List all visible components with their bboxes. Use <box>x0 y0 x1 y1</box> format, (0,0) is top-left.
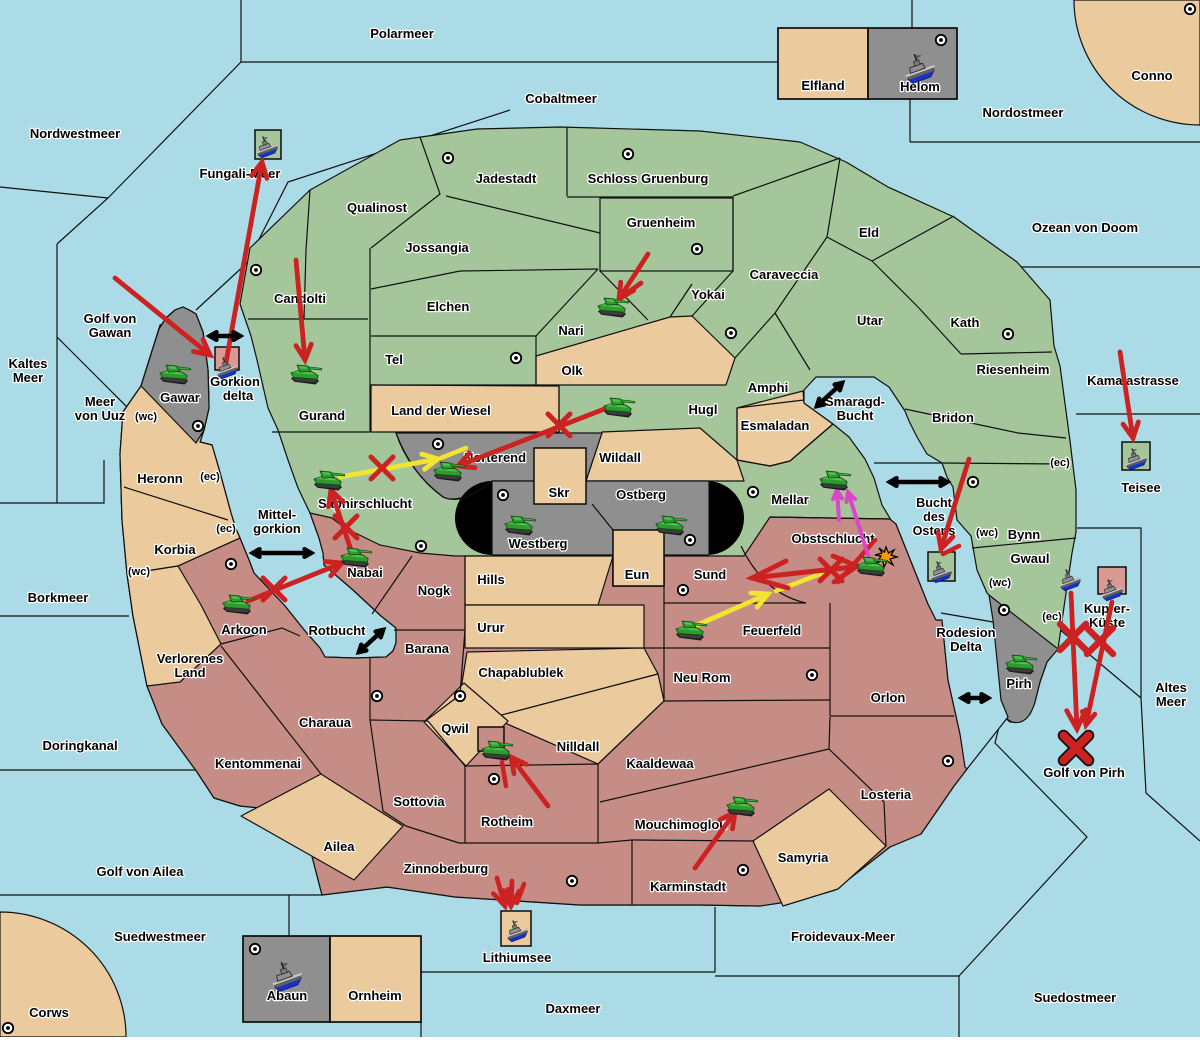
svg-text:Gurand: Gurand <box>299 408 345 423</box>
svg-text:Zinnoberburg: Zinnoberburg <box>404 861 489 876</box>
svg-text:Qwil: Qwil <box>441 721 468 736</box>
svg-text:Hugl: Hugl <box>689 402 718 417</box>
svg-text:Kath: Kath <box>951 315 980 330</box>
svg-text:Elfland: Elfland <box>801 78 844 93</box>
svg-text:Rodesion: Rodesion <box>936 625 995 640</box>
svg-text:Helom: Helom <box>900 79 940 94</box>
svg-text:Land: Land <box>174 665 205 680</box>
svg-text:Meer: Meer <box>85 394 115 409</box>
svg-text:Gorkion: Gorkion <box>210 374 260 389</box>
svg-text:Neu Rom: Neu Rom <box>673 670 730 685</box>
svg-text:Pirh: Pirh <box>1006 676 1031 691</box>
svg-text:Eun: Eun <box>625 567 650 582</box>
svg-text:Delta: Delta <box>950 639 983 654</box>
svg-text:Rotbucht: Rotbucht <box>308 623 366 638</box>
svg-text:Barana: Barana <box>405 641 450 656</box>
svg-text:Skr: Skr <box>549 485 570 500</box>
svg-text:Suedwestmeer: Suedwestmeer <box>114 929 206 944</box>
svg-text:Chapablublek: Chapablublek <box>478 665 564 680</box>
svg-text:Ailea: Ailea <box>323 839 355 854</box>
svg-text:gorkion: gorkion <box>253 521 301 536</box>
svg-text:Eld: Eld <box>859 225 879 240</box>
svg-text:Karminstadt: Karminstadt <box>650 879 727 894</box>
svg-text:(wc): (wc) <box>976 527 998 539</box>
svg-text:Utar: Utar <box>857 313 883 328</box>
svg-text:Urur: Urur <box>477 620 504 635</box>
svg-text:Land der Wiesel: Land der Wiesel <box>391 403 491 418</box>
svg-text:Ornheim: Ornheim <box>348 988 401 1003</box>
svg-text:Doringkanal: Doringkanal <box>42 738 117 753</box>
svg-text:Conno: Conno <box>1131 68 1172 83</box>
svg-text:Kentommenai: Kentommenai <box>215 756 301 771</box>
svg-text:Gwaul: Gwaul <box>1010 551 1049 566</box>
svg-text:Nordostmeer: Nordostmeer <box>983 105 1064 120</box>
svg-text:Polarmeer: Polarmeer <box>370 26 434 41</box>
svg-text:Bucht: Bucht <box>916 496 952 510</box>
svg-text:(ec): (ec) <box>216 523 236 535</box>
svg-text:(wc): (wc) <box>135 411 157 423</box>
svg-text:Hills: Hills <box>477 572 504 587</box>
svg-text:Gawan: Gawan <box>89 325 132 340</box>
svg-text:Orlon: Orlon <box>871 690 906 705</box>
svg-text:Mouchimoglou: Mouchimoglou <box>635 817 727 832</box>
svg-text:Verlorenes: Verlorenes <box>157 651 224 666</box>
svg-text:Altes: Altes <box>1155 680 1187 695</box>
svg-text:Sottovia: Sottovia <box>393 794 445 809</box>
svg-text:Golf von Ailea: Golf von Ailea <box>97 864 185 879</box>
svg-text:Golf von: Golf von <box>84 311 137 326</box>
svg-text:Mellar: Mellar <box>771 492 809 507</box>
svg-text:(ec): (ec) <box>200 471 220 483</box>
svg-text:Olk: Olk <box>562 363 584 378</box>
svg-text:Rotheim: Rotheim <box>481 814 533 829</box>
svg-text:Bucht: Bucht <box>837 408 875 423</box>
svg-text:Daxmeer: Daxmeer <box>546 1001 601 1016</box>
svg-text:Korbia: Korbia <box>154 542 196 557</box>
svg-text:Yokai: Yokai <box>691 287 725 302</box>
svg-text:Charaua: Charaua <box>299 715 352 730</box>
svg-text:delta: delta <box>223 388 254 403</box>
svg-text:Elchen: Elchen <box>427 299 470 314</box>
svg-text:Heronn: Heronn <box>137 471 183 486</box>
svg-text:Caraveccia: Caraveccia <box>750 267 819 282</box>
svg-text:Kaltes: Kaltes <box>8 356 47 371</box>
svg-text:Lithiumsee: Lithiumsee <box>483 950 552 965</box>
svg-text:Nilldall: Nilldall <box>557 739 600 754</box>
svg-text:Borkmeer: Borkmeer <box>28 590 89 605</box>
svg-text:Jossangia: Jossangia <box>405 240 469 255</box>
svg-text:Gruenheim: Gruenheim <box>627 215 696 230</box>
svg-text:Ostberg: Ostberg <box>616 487 666 502</box>
svg-text:Esmaladan: Esmaladan <box>741 418 810 433</box>
svg-text:Arkoon: Arkoon <box>221 622 267 637</box>
svg-text:Losteria: Losteria <box>861 787 912 802</box>
svg-text:Westberg: Westberg <box>509 536 568 551</box>
svg-text:Kamalastrasse: Kamalastrasse <box>1087 373 1179 388</box>
svg-text:Mittel-: Mittel- <box>258 507 296 522</box>
svg-text:Wildall: Wildall <box>599 450 641 465</box>
svg-text:Kaaldewaa: Kaaldewaa <box>626 756 694 771</box>
svg-text:Abaun: Abaun <box>267 988 308 1003</box>
svg-text:Teisee: Teisee <box>1121 480 1161 495</box>
svg-text:des: des <box>923 510 945 524</box>
svg-text:Samyria: Samyria <box>778 850 829 865</box>
svg-text:Sund: Sund <box>694 567 727 582</box>
svg-text:Gawar: Gawar <box>160 390 200 405</box>
svg-text:Smaragd-: Smaragd- <box>825 394 885 409</box>
svg-text:(wc): (wc) <box>989 577 1011 589</box>
svg-text:(ec): (ec) <box>1050 457 1070 469</box>
svg-text:Bynn: Bynn <box>1008 527 1041 542</box>
svg-text:Suedostmeer: Suedostmeer <box>1034 990 1116 1005</box>
svg-text:Meer: Meer <box>13 370 43 385</box>
svg-text:Qualinost: Qualinost <box>347 200 408 215</box>
svg-text:Ozean von Doom: Ozean von Doom <box>1032 220 1138 235</box>
svg-text:Froidevaux-Meer: Froidevaux-Meer <box>791 929 895 944</box>
svg-text:Corws: Corws <box>29 1005 69 1020</box>
svg-text:Riesenheim: Riesenheim <box>977 362 1050 377</box>
svg-text:Kupfer-: Kupfer- <box>1084 601 1130 616</box>
svg-text:Nari: Nari <box>558 323 583 338</box>
svg-text:von Uuz: von Uuz <box>75 408 126 423</box>
svg-text:Nordwestmeer: Nordwestmeer <box>30 126 120 141</box>
svg-text:(wc): (wc) <box>128 566 150 578</box>
svg-text:Jadestadt: Jadestadt <box>476 171 537 186</box>
svg-text:Bridon: Bridon <box>932 410 974 425</box>
svg-text:Amphi: Amphi <box>748 380 788 395</box>
svg-text:Cobaltmeer: Cobaltmeer <box>525 91 597 106</box>
svg-text:Tel: Tel <box>385 352 403 367</box>
svg-text:Schloss Gruenburg: Schloss Gruenburg <box>588 171 709 186</box>
svg-text:Golf von Pirh: Golf von Pirh <box>1043 765 1125 780</box>
svg-text:Nogk: Nogk <box>418 583 451 598</box>
svg-text:Feuerfeld: Feuerfeld <box>743 623 802 638</box>
svg-text:Meer: Meer <box>1156 694 1186 709</box>
